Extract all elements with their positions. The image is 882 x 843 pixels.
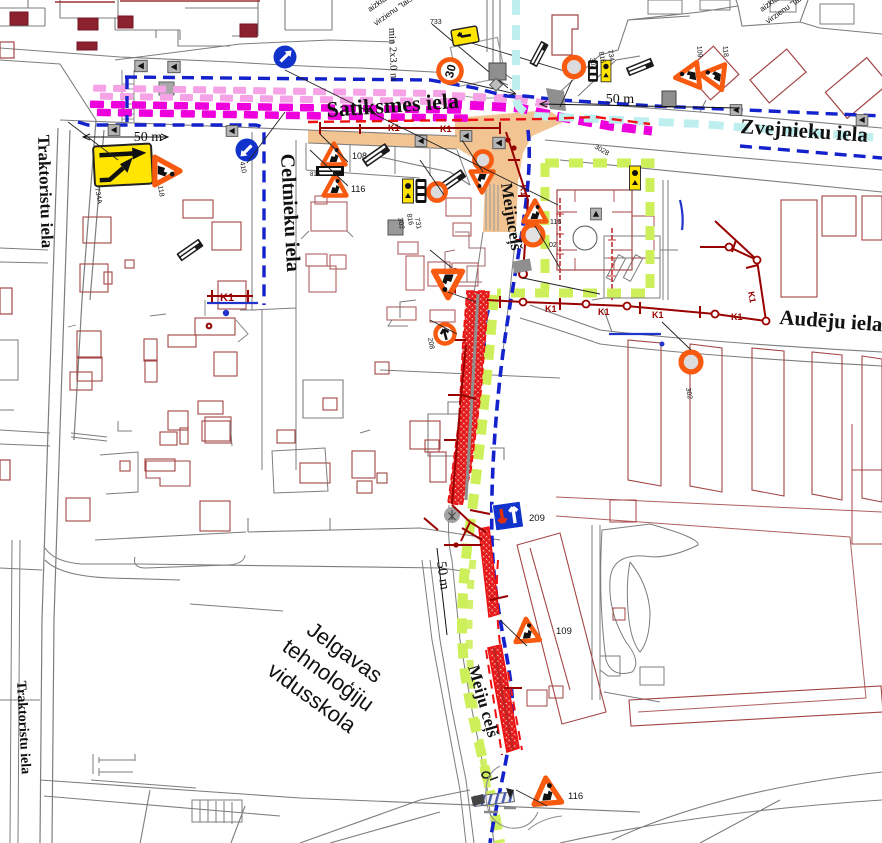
svg-text:K1: K1 — [388, 123, 400, 133]
svg-text:108: 108 — [352, 151, 367, 161]
svg-text:K1: K1 — [220, 292, 234, 304]
svg-text:K1: K1 — [652, 310, 664, 320]
svg-text:116: 116 — [550, 219, 561, 226]
svg-text:109: 109 — [695, 46, 703, 58]
svg-text:Traktoristu iela: Traktoristu iela — [34, 134, 57, 249]
svg-text:733: 733 — [430, 19, 442, 26]
svg-text:50 m: 50 m — [134, 130, 163, 145]
svg-text:K1: K1 — [440, 124, 452, 134]
svg-text:K1: K1 — [746, 291, 758, 304]
svg-text:K1: K1 — [598, 307, 610, 317]
svg-text:min 2x3.0 m: min 2x3.0 m — [386, 28, 399, 82]
svg-text:109: 109 — [556, 626, 572, 637]
svg-text:K1: K1 — [545, 304, 557, 314]
svg-text:116: 116 — [568, 791, 583, 802]
svg-text:50 m: 50 m — [606, 92, 635, 107]
svg-text:816: 816 — [310, 172, 321, 178]
svg-text:K1: K1 — [731, 312, 743, 322]
svg-text:118: 118 — [721, 46, 729, 58]
svg-text:209: 209 — [529, 513, 545, 524]
svg-text:02: 02 — [549, 242, 557, 249]
svg-text:116: 116 — [351, 184, 365, 194]
